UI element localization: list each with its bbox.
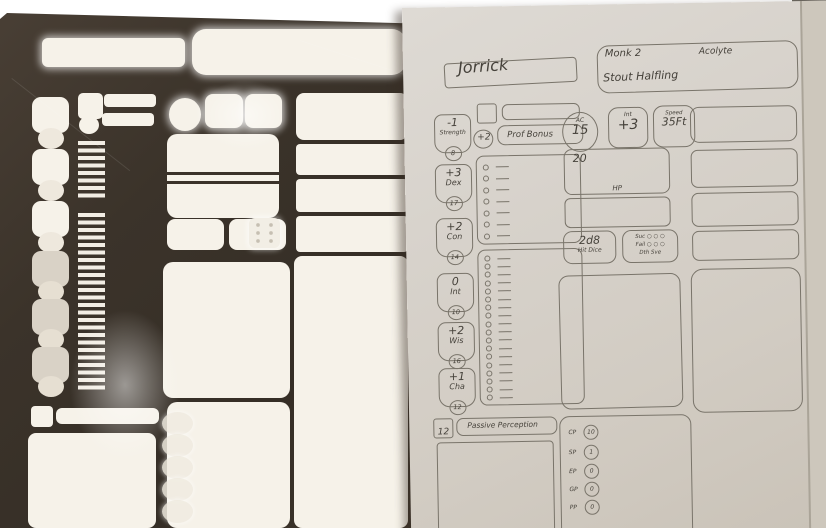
stencil-hp-divider	[167, 172, 279, 175]
hit-dice-value: 2d8	[564, 233, 615, 247]
stencil-cutout-attack-row	[296, 179, 408, 212]
ability-name: Dex	[436, 179, 471, 187]
hand-drawn-character-sheet: Jorrick Monk 2 Acolyte Stout Halfling +2…	[402, 1, 826, 528]
slot-circle	[483, 176, 489, 182]
passive-perception-value: 12	[438, 427, 450, 437]
ability-int: 0 Int 10	[437, 273, 475, 313]
inspiration-square	[477, 103, 497, 123]
stencil-cutout-header-box	[192, 29, 406, 75]
slot-line	[498, 274, 511, 275]
attacks-box	[690, 105, 798, 143]
stencil-cutout-hit-dice-box	[167, 219, 224, 250]
ability-dex: +3 Dex 17	[435, 164, 473, 204]
currency-box: CP 10 SP 1 EP 0 GP 0 PP 0	[559, 414, 693, 528]
slot-circle	[486, 329, 492, 335]
slot-line	[498, 307, 511, 308]
slot-circle	[483, 164, 489, 170]
slot-line	[498, 299, 511, 300]
slot-line	[497, 258, 510, 259]
initiative-box: Int +3	[608, 107, 649, 149]
hp-label: HP	[612, 184, 622, 192]
slot-line	[497, 212, 510, 213]
stencil-cutout-passive-square	[31, 406, 53, 427]
currency-value: 0	[585, 500, 600, 515]
currency-label: PP	[570, 504, 583, 511]
slot-line	[498, 266, 511, 267]
stencil-cutout-ability-circle	[38, 232, 64, 253]
slot-line	[497, 235, 510, 236]
currency-row-pp: PP 0	[570, 500, 600, 516]
stencil-cutout-hp-box	[167, 134, 279, 218]
stencil-currency-circle	[162, 456, 193, 479]
slot-circle	[485, 313, 491, 319]
ability-name: Strength	[435, 129, 470, 137]
currency-value: 0	[584, 464, 599, 479]
hit-dice-label: Hit Dice	[564, 246, 615, 254]
slot-circle	[486, 362, 492, 368]
currency-label: SP	[569, 449, 582, 456]
attack-row-box	[691, 148, 799, 188]
slot-circle	[485, 297, 491, 303]
slot-circle	[483, 199, 489, 205]
stencil-hp-divider	[167, 181, 279, 184]
stencil-currency-circle	[162, 434, 193, 457]
translucent-d6-die	[249, 218, 280, 248]
death-save-success-circles: ○ ○ ○	[647, 233, 665, 239]
currency-row-cp: CP 10	[568, 425, 598, 441]
photo-scene: Jorrick Monk 2 Acolyte Stout Halfling +2…	[0, 0, 826, 528]
hp-current: 20	[573, 152, 587, 165]
slot-line	[499, 356, 512, 357]
speed-value: 35Ft	[654, 116, 694, 129]
proficiency-label: Prof Bonus	[507, 129, 553, 140]
ability-mod: +3	[436, 166, 471, 180]
slot-circle	[485, 305, 491, 311]
slot-circle	[485, 272, 491, 278]
initiative-value: +3	[609, 118, 647, 134]
notes-box	[691, 267, 803, 413]
slot-line	[499, 323, 512, 324]
character-background: Acolyte	[699, 46, 733, 57]
stencil-currency-circle	[162, 478, 193, 501]
ability-strength: -1 Strength 8	[434, 114, 472, 154]
stencil-cutout-inspiration-square	[78, 93, 103, 119]
slot-circle	[485, 321, 491, 327]
slot-circle	[484, 256, 490, 262]
currency-row-sp: SP 1	[569, 445, 599, 461]
hit-points-box: 20 HP	[563, 147, 670, 195]
stencil-cutout-ac-circle	[169, 98, 201, 131]
stencil-cutout-inspiration-bar	[104, 94, 156, 107]
ac-value: 15	[563, 124, 597, 138]
currency-row-ep: EP 0	[569, 464, 599, 480]
slot-circle	[487, 395, 493, 401]
ability-mod: -1	[435, 116, 470, 130]
character-sheet-stencil	[0, 0, 436, 528]
stencil-cutout-proficiency-bar	[102, 113, 154, 126]
stencil-cutout-passive-bar	[56, 408, 159, 424]
stencil-skill-slots	[78, 213, 105, 391]
slot-line	[496, 189, 509, 190]
stencil-cutout-features-box	[163, 262, 290, 398]
ability-mod: +1	[439, 370, 474, 384]
stencil-currency-circle	[162, 412, 193, 435]
ability-score: 16	[448, 354, 465, 369]
slot-line	[499, 340, 512, 341]
stencil-cutout-attack-row	[296, 144, 408, 175]
ability-mod: +2	[437, 220, 472, 234]
slot-line	[499, 372, 512, 373]
currency-value: 1	[584, 445, 599, 460]
stencil-cutout-speed-box	[245, 94, 282, 128]
ability-score: 8	[444, 146, 461, 161]
slot-line	[498, 282, 511, 283]
slot-line	[498, 315, 511, 316]
speed-box: Speed 35Ft	[653, 105, 696, 148]
ability-name: Int	[438, 288, 473, 296]
attack-row-box	[692, 229, 800, 261]
slot-line	[496, 178, 509, 179]
slot-circle	[487, 387, 493, 393]
ability-name: Con	[437, 233, 472, 241]
ability-name: Cha	[440, 383, 475, 391]
stencil-cutout-ability-circle	[38, 376, 64, 397]
slot-line	[500, 381, 513, 382]
slot-line	[500, 397, 513, 398]
armor-class-circle: AC 15	[562, 112, 599, 153]
currency-label: CP	[568, 429, 581, 436]
stencil-cutout-attack-row	[296, 216, 408, 252]
death-save-fail-label: Fail	[635, 242, 645, 248]
slot-line	[496, 166, 509, 167]
slot-circle	[484, 233, 490, 239]
slot-circle	[486, 370, 492, 376]
death-saves-box: Suc ○ ○ ○ Fail ○ ○ ○ Dth Sve	[622, 229, 679, 263]
features-box	[558, 273, 683, 410]
equipment-box	[437, 440, 556, 528]
temp-hp-box	[564, 196, 671, 228]
death-save-fail-circles: ○ ○ ○	[647, 241, 665, 247]
attack-row-box	[691, 191, 799, 227]
ability-con: +2 Con 14	[436, 218, 474, 258]
slot-line	[499, 348, 512, 349]
passive-perception-square: 12	[433, 418, 453, 438]
stencil-currency-circle	[162, 500, 193, 523]
ability-score: 10	[447, 305, 464, 320]
ability-score: 12	[449, 400, 466, 415]
stencil-cutout-notes-box	[294, 256, 408, 528]
stencil-cutout-name-bar	[42, 38, 185, 67]
slot-line	[500, 389, 513, 390]
slot-line	[499, 331, 512, 332]
slot-circle	[483, 187, 489, 193]
death-save-success-label: Suc	[635, 234, 645, 240]
ability-wis: +2 Wis 16	[437, 322, 475, 362]
stencil-cutout-bottom-box	[28, 433, 156, 528]
ability-mod: +2	[439, 324, 474, 338]
ability-score: 17	[445, 196, 462, 211]
proficiency-bonus: +2	[477, 132, 490, 142]
ability-name: Wis	[439, 337, 474, 345]
currency-label: EP	[569, 468, 582, 475]
ability-mod: 0	[438, 275, 473, 289]
slot-circle	[486, 378, 492, 384]
stencil-cutout-ability-circle	[38, 128, 64, 149]
slot-circle	[486, 346, 492, 352]
currency-label: GP	[569, 486, 582, 493]
slot-line	[496, 201, 509, 202]
ability-cha: +1 Cha 12	[438, 368, 476, 408]
slot-circle	[486, 337, 492, 343]
slot-circle	[485, 280, 491, 286]
slot-circle	[484, 210, 490, 216]
stencil-cutout-attack-box	[296, 93, 408, 140]
stencil-cutout-ability-circle	[38, 180, 64, 201]
slot-line	[497, 224, 510, 225]
slot-circle	[484, 222, 490, 228]
slot-circle	[485, 288, 491, 294]
slot-line	[498, 290, 511, 291]
slot-circle	[484, 264, 490, 270]
class-level: Monk 2	[605, 48, 642, 60]
currency-value: 10	[583, 425, 598, 440]
slot-circle	[486, 354, 492, 360]
stencil-cutout-initiative-box	[205, 94, 243, 128]
stencil-cutout-proficiency-circle	[79, 116, 99, 134]
hit-dice-box: 2d8 Hit Dice	[563, 230, 617, 264]
passive-perception-label: Passive Perception	[467, 420, 538, 430]
passive-perception-bar: Passive Perception	[456, 416, 557, 436]
slot-line	[499, 364, 512, 365]
ability-score: 14	[446, 250, 463, 265]
death-saves-label: Dth Sve	[623, 248, 677, 257]
currency-value: 0	[584, 482, 599, 497]
stencil-saving-throw-slots	[78, 141, 105, 199]
currency-row-gp: GP 0	[569, 482, 599, 498]
character-name: Jorrick	[457, 55, 508, 77]
